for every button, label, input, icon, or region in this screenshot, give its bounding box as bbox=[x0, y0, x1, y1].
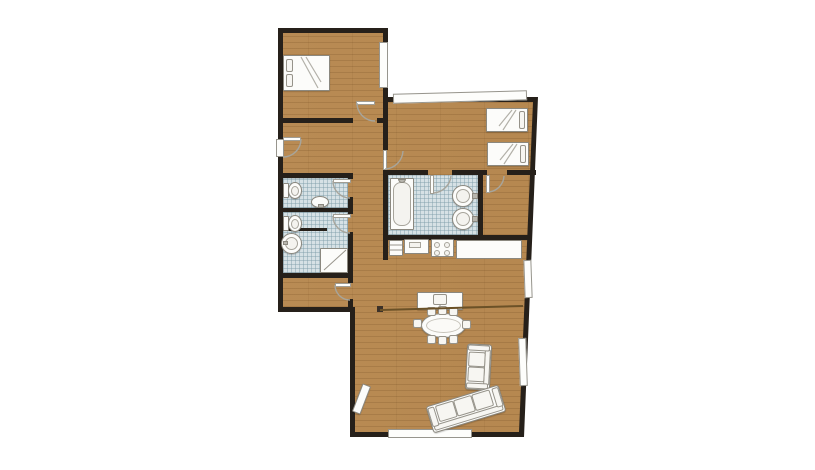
interior-wall bbox=[478, 175, 483, 235]
interior-wall bbox=[348, 232, 353, 283]
window bbox=[523, 260, 532, 298]
interior-wall bbox=[507, 170, 536, 175]
dining-chair bbox=[449, 335, 458, 344]
bathtub-basin bbox=[393, 182, 411, 226]
dining-table-top bbox=[426, 318, 461, 333]
interior-wall bbox=[348, 299, 353, 312]
door-leaf bbox=[333, 179, 351, 183]
burner bbox=[434, 250, 440, 256]
door-leaf bbox=[356, 101, 375, 105]
sink-basin bbox=[456, 189, 470, 203]
dining-chair bbox=[462, 320, 471, 329]
interior-wall bbox=[388, 170, 428, 175]
toilet-bowl bbox=[291, 219, 299, 229]
dining-chair bbox=[438, 306, 447, 315]
interior-wall bbox=[278, 173, 353, 178]
door-leaf bbox=[335, 283, 351, 287]
tv bbox=[433, 294, 447, 305]
door-leaf bbox=[383, 150, 387, 170]
burner bbox=[444, 250, 450, 256]
interior-wall bbox=[383, 170, 388, 260]
door-leaf bbox=[430, 175, 434, 194]
dining-chair bbox=[413, 319, 422, 328]
pillow bbox=[286, 74, 293, 87]
kitchen-counter bbox=[456, 240, 522, 259]
faucet bbox=[283, 241, 288, 245]
window bbox=[518, 338, 528, 386]
door-leaf bbox=[486, 175, 490, 193]
pillow bbox=[519, 111, 525, 129]
faucet bbox=[318, 204, 324, 208]
burner bbox=[434, 242, 440, 248]
sofa-cushion bbox=[468, 351, 486, 367]
interior-wall bbox=[348, 197, 353, 214]
burner bbox=[444, 242, 450, 248]
dining-chair bbox=[427, 307, 436, 316]
door-leaf bbox=[283, 137, 301, 141]
interior-wall bbox=[278, 273, 353, 278]
interior-wall bbox=[278, 208, 353, 212]
kitchen-cabinet bbox=[389, 240, 403, 256]
floor-plan bbox=[0, 0, 815, 470]
pillow bbox=[520, 145, 526, 163]
toilet-bowl bbox=[291, 186, 299, 196]
faucet bbox=[472, 193, 478, 199]
pillow bbox=[286, 59, 293, 72]
interior-wall bbox=[278, 118, 353, 123]
sofa-cushion bbox=[467, 366, 485, 382]
sofa-armrest bbox=[468, 344, 490, 351]
kitchen-sink-basin bbox=[409, 242, 421, 248]
window bbox=[388, 429, 472, 438]
door-leaf bbox=[333, 214, 351, 218]
sofa-two-seat bbox=[465, 343, 492, 390]
faucet bbox=[472, 216, 478, 222]
dining-chair bbox=[427, 335, 436, 344]
window bbox=[379, 42, 388, 88]
shower-cabin bbox=[320, 248, 348, 273]
partition-post bbox=[377, 306, 383, 312]
sink-basin bbox=[456, 212, 470, 226]
interior-wall bbox=[383, 102, 388, 150]
dining-chair bbox=[438, 336, 447, 345]
dining-chair bbox=[449, 307, 458, 316]
entry-door-opening bbox=[276, 139, 284, 157]
